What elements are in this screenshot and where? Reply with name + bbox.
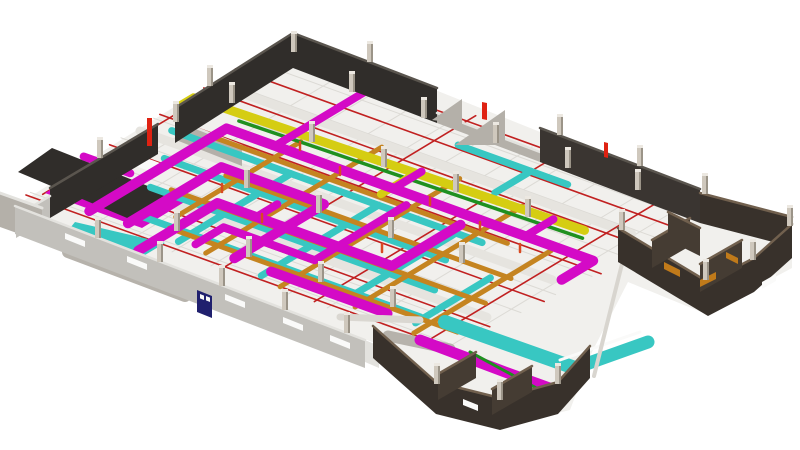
column-cap <box>157 241 163 244</box>
column-shade <box>561 117 563 135</box>
column-shade <box>177 104 179 122</box>
red-pipe-accent-2 <box>482 102 487 120</box>
column-shade <box>559 366 561 384</box>
column-shade <box>161 244 163 262</box>
column-cap <box>390 286 396 289</box>
column-cap <box>282 289 288 292</box>
column-shade <box>438 366 440 384</box>
column-shade <box>394 289 396 307</box>
column-shade <box>233 85 235 103</box>
bim-model-viewport <box>0 0 800 450</box>
column-shade <box>425 100 427 118</box>
column-cap <box>229 82 235 85</box>
red-pipe-accent-3 <box>604 142 608 158</box>
column-shade <box>623 212 625 230</box>
column-cap <box>750 239 756 242</box>
column-cap <box>318 261 324 264</box>
white-beam-center <box>340 317 420 320</box>
column-shade <box>223 268 225 286</box>
column-cap <box>703 259 709 262</box>
column-cap <box>381 146 387 149</box>
column-shade <box>501 382 503 400</box>
column-shade <box>457 174 459 192</box>
column-shade <box>371 44 373 62</box>
column-cap <box>349 71 355 74</box>
column-cap <box>291 31 297 34</box>
column-cap <box>316 192 322 195</box>
column-cap <box>453 171 459 174</box>
column-shade <box>353 74 355 92</box>
column-shade <box>569 150 571 168</box>
column-shade <box>320 195 322 213</box>
column-cap <box>619 209 625 212</box>
column-shade <box>99 220 101 238</box>
column-cap <box>173 101 179 104</box>
column-shade <box>295 34 297 52</box>
column-cap <box>388 217 394 220</box>
column-shade <box>385 149 387 167</box>
column-shade <box>706 176 708 194</box>
column-cap <box>635 169 641 172</box>
column-shade <box>641 148 643 166</box>
column-cap <box>459 242 465 245</box>
column-shade <box>348 315 350 333</box>
column-cap <box>557 114 563 117</box>
column-shade <box>248 170 250 188</box>
column-cap <box>246 236 252 239</box>
column-shade <box>101 140 103 158</box>
column-shade <box>211 68 213 86</box>
column-shade <box>392 220 394 238</box>
column-cap <box>555 363 561 366</box>
column-cap <box>434 363 440 366</box>
column-cap <box>344 312 350 315</box>
column-cap <box>525 196 531 199</box>
column-shade <box>250 239 252 257</box>
column-cap <box>787 205 793 208</box>
column-cap <box>565 147 571 150</box>
column-shade <box>529 199 531 217</box>
column-cap <box>702 173 708 176</box>
column-shade <box>639 172 641 190</box>
column-cap <box>637 145 643 148</box>
column-shade <box>322 264 324 282</box>
column-shade <box>286 292 288 310</box>
column-shade <box>791 208 793 226</box>
column-cap <box>207 65 213 68</box>
column-cap <box>309 121 315 124</box>
column-cap <box>493 122 499 125</box>
column-cap <box>244 167 250 170</box>
bim-scene <box>0 0 800 450</box>
column-shade <box>178 213 180 231</box>
column-cap <box>219 265 225 268</box>
column-shade <box>463 245 465 263</box>
column-cap <box>497 379 503 382</box>
column-cap <box>95 217 101 220</box>
column-cap <box>97 137 103 140</box>
column-cap <box>421 97 427 100</box>
column-shade <box>754 242 756 260</box>
column-shade <box>497 125 499 143</box>
column-cap <box>174 210 180 213</box>
column-shade <box>313 124 315 142</box>
column-cap <box>367 41 373 44</box>
red-pipe-accent-1 <box>147 118 152 146</box>
column-shade <box>707 262 709 280</box>
